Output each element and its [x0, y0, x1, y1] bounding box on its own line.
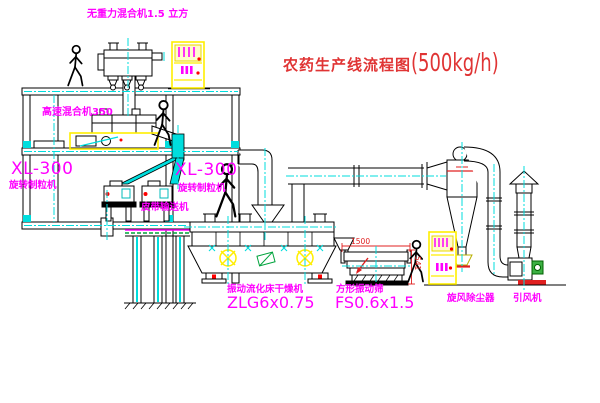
high-speed-mixer-label: 高速混合机350 — [42, 108, 113, 119]
process-flow-diagram: 农药生产线流程图 (500kg/h) 无重力混合机1.5 立方 高速混合机350… — [0, 0, 600, 403]
exhaust-duct — [288, 162, 447, 222]
cyclone-label: 旋风除尘器 — [447, 294, 495, 304]
screen-length-dimension: 1500 — [351, 238, 370, 246]
gravity-mixer-label: 无重力混合机1.5 立方 — [87, 10, 188, 21]
person-roof — [68, 46, 82, 86]
title-capacity: (500kg/h) — [411, 48, 499, 77]
screen-height-dimension: 541 — [413, 256, 421, 270]
dryer-model-label: ZLG6x0.75 — [227, 295, 315, 312]
granulator-right-model: XL-300 — [175, 162, 237, 180]
feed-elbow-duct — [238, 150, 284, 222]
fluid-bed-dryer-machine — [188, 214, 336, 283]
granulator-right-name: 旋转制粒机 — [178, 184, 226, 194]
belt-conveyor-label: 皮带输送机 — [141, 203, 189, 213]
gravity-mixer-machine — [98, 43, 164, 116]
control-cabinet-right — [429, 232, 456, 284]
screen-model-label: FS0.6x1.5 — [335, 295, 414, 312]
vibrating-screen-machine — [334, 238, 415, 285]
control-cabinet-top — [168, 42, 210, 89]
granulator-left-name: 旋转制粒机 — [9, 181, 57, 191]
drawing-title: 农药生产线流程图 (500kg/h) — [283, 48, 533, 77]
fan-label: 引风机 — [513, 294, 542, 304]
title-text: 农药生产线流程图 — [283, 54, 411, 75]
granulator-left-model: XL-300 — [11, 161, 73, 179]
